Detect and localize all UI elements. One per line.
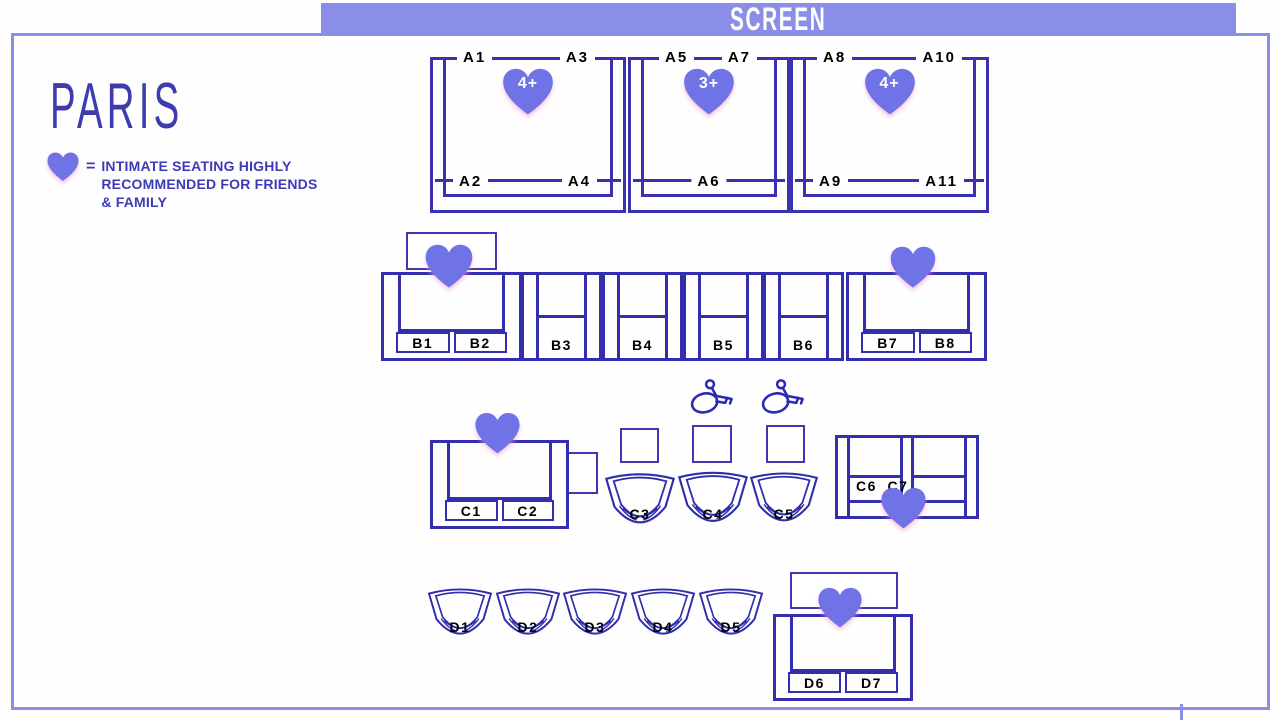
seat-label-a4: A4: [562, 173, 597, 190]
entrance-notch: [1180, 704, 1183, 720]
seat-label-c1: C1: [447, 503, 496, 519]
legend-line: & FAMILY: [101, 193, 317, 211]
seat-b7[interactable]: B7: [861, 332, 915, 353]
seat-label-d6: D6: [790, 675, 839, 691]
legend-line: RECOMMENDED FOR FRIENDS: [101, 175, 317, 193]
seat-label-d1: D1: [426, 619, 494, 635]
seat-label-b4: B4: [605, 337, 680, 353]
seat-label-b1: B1: [398, 335, 448, 351]
capacity-badge: 4+: [501, 75, 555, 93]
seat-d1[interactable]: D1: [426, 577, 494, 651]
seat-c4[interactable]: C4: [676, 461, 750, 538]
seat-label-c4: C4: [676, 506, 750, 522]
heart-icon: [46, 152, 80, 182]
venue-title: PARIS: [50, 68, 183, 143]
seat-label-d4: D4: [629, 619, 697, 635]
booth-a1-a4[interactable]: A1 A3 A2 A4 4+: [430, 57, 626, 213]
seat-label-a6: A6: [691, 173, 726, 190]
legend-equals: =: [86, 158, 95, 176]
seat-c1[interactable]: C1: [445, 500, 498, 521]
seating-chart: SCREEN PARIS = INTIMATE SEATING HIGHLY R…: [0, 0, 1280, 720]
seat-label-c3: C3: [603, 506, 677, 522]
heart-icon: 3+: [682, 68, 736, 116]
seat-label-a2: A2: [453, 173, 488, 190]
loveseat-c1-c2[interactable]: C1 C2: [430, 440, 569, 529]
seat-b1[interactable]: B1: [396, 332, 450, 353]
loveseat-b7-b8[interactable]: B7 B8: [846, 272, 987, 361]
heart-icon: 4+: [501, 68, 555, 116]
seat-label-b3: B3: [524, 337, 599, 353]
seat-label-a1: A1: [457, 49, 492, 66]
seat-d5[interactable]: D5: [697, 577, 765, 651]
seat-c3[interactable]: C3: [603, 464, 677, 538]
legend: = INTIMATE SEATING HIGHLY RECOMMENDED FO…: [46, 152, 318, 211]
legend-text: INTIMATE SEATING HIGHLY RECOMMENDED FOR …: [101, 157, 317, 211]
seat-d4[interactable]: D4: [629, 577, 697, 651]
seat-c5[interactable]: C5: [748, 461, 820, 538]
seat-label-b7: B7: [863, 335, 913, 351]
seat-label-a11: A11: [919, 173, 964, 190]
wheelchair-icon: [760, 378, 805, 416]
screen-banner: SCREEN: [321, 3, 1236, 35]
table: [692, 425, 732, 463]
seat-label-b5: B5: [686, 337, 761, 353]
seat-label-a3: A3: [560, 49, 595, 66]
seat-label-c5: C5: [748, 506, 820, 522]
seat-b4[interactable]: B4: [602, 272, 683, 361]
loveseat-d6-d7[interactable]: D6 D7: [773, 614, 913, 701]
seat-label-d3: D3: [561, 619, 629, 635]
seat-label-b8: B8: [921, 335, 971, 351]
table: [620, 428, 659, 463]
booth-a5-a7[interactable]: A5 A7 A6 3+: [628, 57, 790, 213]
legend-line: INTIMATE SEATING HIGHLY: [101, 157, 317, 175]
table: [567, 452, 598, 494]
capacity-badge: 3+: [682, 75, 736, 93]
seat-b5[interactable]: B5: [683, 272, 764, 361]
seat-label-a7: A7: [722, 49, 757, 66]
wheelchair-icon: [689, 378, 734, 416]
seat-d2[interactable]: D2: [494, 577, 562, 651]
seat-label-b2: B2: [456, 335, 506, 351]
seat-b8[interactable]: B8: [919, 332, 973, 353]
seat-d3[interactable]: D3: [561, 577, 629, 651]
booth-a8-a11[interactable]: A8 A10 A9 A11 4+: [790, 57, 989, 213]
seat-label-a5: A5: [659, 49, 694, 66]
seat-label-d2: D2: [494, 619, 562, 635]
table: [406, 232, 497, 270]
seat-label-a10: A10: [916, 49, 962, 66]
seat-label-a8: A8: [817, 49, 852, 66]
screen-label: SCREEN: [730, 0, 826, 38]
capacity-badge: 4+: [863, 75, 917, 93]
table: [766, 425, 805, 463]
seat-label-d7: D7: [847, 675, 896, 691]
seat-c2[interactable]: C2: [502, 500, 555, 521]
seat-b6[interactable]: B6: [763, 272, 844, 361]
loveseat-b1-b2[interactable]: B1 B2: [381, 272, 522, 361]
seat-b3[interactable]: B3: [521, 272, 602, 361]
seat-d7[interactable]: D7: [845, 672, 898, 693]
seat-b2[interactable]: B2: [454, 332, 508, 353]
seat-label-d5: D5: [697, 619, 765, 635]
heart-icon: 4+: [863, 68, 917, 116]
seat-label-c7: C7: [838, 478, 958, 494]
seat-label-c2: C2: [504, 503, 553, 519]
recliner-c6-c7[interactable]: C6 C7: [835, 435, 979, 519]
table: [790, 572, 898, 609]
seat-d6[interactable]: D6: [788, 672, 841, 693]
seat-label-a9: A9: [813, 173, 848, 190]
seat-label-b6: B6: [766, 337, 841, 353]
